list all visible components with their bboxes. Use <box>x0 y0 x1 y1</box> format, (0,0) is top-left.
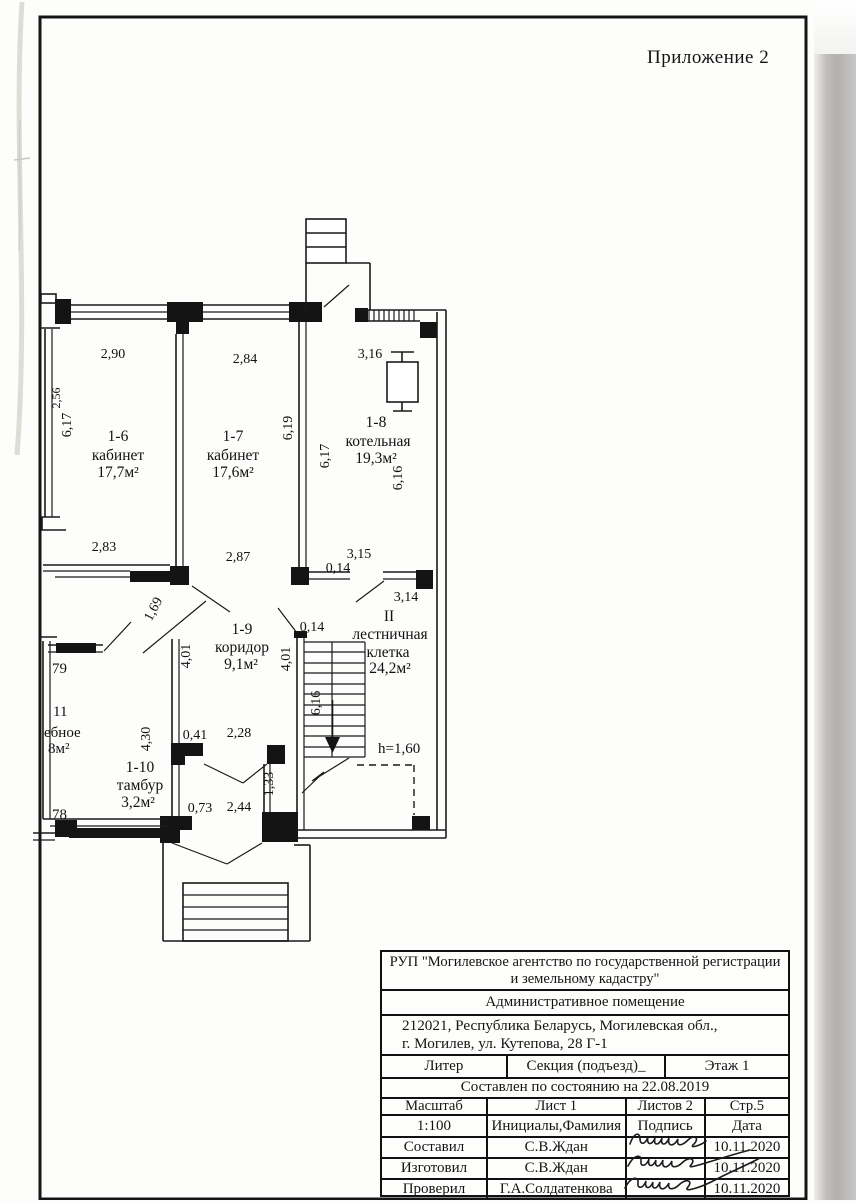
dim-label: 6,19 <box>281 416 296 441</box>
scale-label: Масштаб <box>382 1099 486 1114</box>
dim-label: 0,73 <box>188 801 213 816</box>
floor-label: Этаж 1 <box>664 1056 788 1077</box>
dim-label: 6,17 <box>318 444 333 469</box>
room-name: лестничная <box>352 626 427 643</box>
liter-row: Литер Секция (подъезд)_ Этаж 1 <box>382 1054 788 1077</box>
signature-cell <box>625 1180 704 1199</box>
title-block: РУП "Могилевское агентство по государств… <box>380 950 790 1197</box>
person-name: Г.А.Солдатенкова <box>486 1180 625 1199</box>
date-value: 10.11.2020 <box>704 1159 788 1178</box>
address: 212021, Республика Беларусь, Могилевская… <box>382 1014 788 1054</box>
walls-top <box>41 294 322 334</box>
room-area: 24,2м² <box>369 660 411 677</box>
dim-label: 6,16 <box>309 691 324 716</box>
signature-cell <box>625 1159 704 1178</box>
role-label: Проверил <box>382 1180 486 1199</box>
premise-type: Административное помещение <box>382 989 788 1014</box>
dim-fragment: 78 <box>52 807 67 823</box>
signature-label: Подпись <box>625 1116 704 1136</box>
dim-label: 6,16 <box>391 466 406 491</box>
dim-label: 2,87 <box>226 550 251 565</box>
room-area: 17,7м² <box>97 464 139 481</box>
scan-fold-artifact <box>14 2 30 455</box>
compiled-by-row: Составил С.В.Ждан 10.11.2020 <box>382 1136 788 1157</box>
room-number: 1-10 <box>126 759 155 776</box>
room-number: II <box>384 608 394 625</box>
dim-label: 2,84 <box>233 352 258 367</box>
liter-label: Литер <box>382 1056 506 1077</box>
dim-label: 2,83 <box>92 540 117 555</box>
room-name: коридор <box>215 639 269 656</box>
scale-header-row: Масштаб Лист 1 Листов 2 Стр.5 <box>382 1097 788 1114</box>
dim-label: 3,15 <box>347 547 372 562</box>
room-name-fragment: ебное <box>44 725 81 741</box>
organization-name: РУП "Могилевское агентство по государств… <box>382 952 788 989</box>
organization-line2: и земельному кадастру" <box>510 971 659 988</box>
walls-room17 <box>291 322 309 585</box>
dim-fragment: 79 <box>52 661 67 677</box>
dim-label: 4,01 <box>279 647 294 672</box>
dim-label: 2,44 <box>227 800 252 815</box>
dim-label: 0,14 <box>300 620 325 635</box>
scale-value-row: 1:100 Инициалы,Фамилия Подпись Дата <box>382 1114 788 1136</box>
dim-label: 4,30 <box>139 727 154 752</box>
dim-label: 0,41 <box>183 728 208 743</box>
dim-label: 2,56 <box>49 388 63 409</box>
room-number-fragment: 11 <box>53 704 67 720</box>
date-label: Дата <box>704 1116 788 1136</box>
room-name: кабинет <box>207 447 260 464</box>
dim-label: 2,28 <box>227 726 252 741</box>
date-value: 10.11.2020 <box>704 1138 788 1157</box>
dim-label: 2,90 <box>101 347 126 362</box>
dim-label: 3,16 <box>358 347 383 362</box>
role-label: Составил <box>382 1138 486 1157</box>
initials-label: Инициалы,Фамилия <box>486 1116 625 1136</box>
scanned-document-page: { "page": { "appendix": "Приложение 2" }… <box>0 0 856 1200</box>
room-area: 19,3м² <box>355 450 397 467</box>
sheets-label: Листов 2 <box>625 1099 704 1114</box>
dim-label: 6,17 <box>60 413 75 438</box>
headroom-note: h=1,60 <box>378 741 420 757</box>
dim-label: 1,69 <box>142 595 167 624</box>
address-line1: 212021, Республика Беларусь, Могилевская… <box>402 1017 718 1035</box>
sheet-label: Лист 1 <box>486 1099 625 1114</box>
dim-label: 1,33 <box>262 772 277 797</box>
organization-line1: РУП "Могилевское агентство по государств… <box>390 954 781 971</box>
room-number: 1-9 <box>232 621 253 638</box>
person-name: С.В.Ждан <box>486 1138 625 1157</box>
room-area: 9,1м² <box>224 656 258 673</box>
room-name: тамбур <box>117 777 164 794</box>
person-name: С.В.Ждан <box>486 1159 625 1178</box>
room-name: котельная <box>345 433 410 450</box>
chimney <box>306 219 370 310</box>
walls-tambour <box>160 743 298 843</box>
room-area: 17,6м² <box>212 464 254 481</box>
break-line <box>302 758 349 793</box>
signature-cell <box>625 1138 704 1157</box>
room-number: 1-6 <box>108 428 129 445</box>
date-value: 10.11.2020 <box>704 1180 788 1199</box>
room-number: 1-8 <box>366 414 387 431</box>
room-area: 3,2м² <box>121 794 155 811</box>
compiled-date: Составлен по состоянию на 22.08.2019 <box>382 1077 788 1097</box>
room-name: кабинет <box>92 447 145 464</box>
made-by-row: Изготовил С.В.Ждан 10.11.2020 <box>382 1157 788 1178</box>
checked-by-row: Проверил Г.А.Солдатенкова 10.11.2020 <box>382 1178 788 1199</box>
dim-label: 0,14 <box>326 561 351 576</box>
address-line2: г. Могилев, ул. Кутепова, 28 Г-1 <box>402 1035 608 1053</box>
room-area-fragment: 8м² <box>48 741 70 757</box>
room-number: 1-7 <box>223 428 244 445</box>
section-label: Секция (подъезд)_ <box>506 1056 664 1077</box>
role-label: Изготовил <box>382 1159 486 1178</box>
scale-value: 1:100 <box>382 1116 486 1136</box>
dim-label: 4,01 <box>179 644 194 669</box>
page-label: Стр.5 <box>704 1099 788 1114</box>
dim-label: 3,14 <box>394 590 419 605</box>
room-name: клетка <box>366 644 409 661</box>
boiler-symbol <box>387 352 418 411</box>
